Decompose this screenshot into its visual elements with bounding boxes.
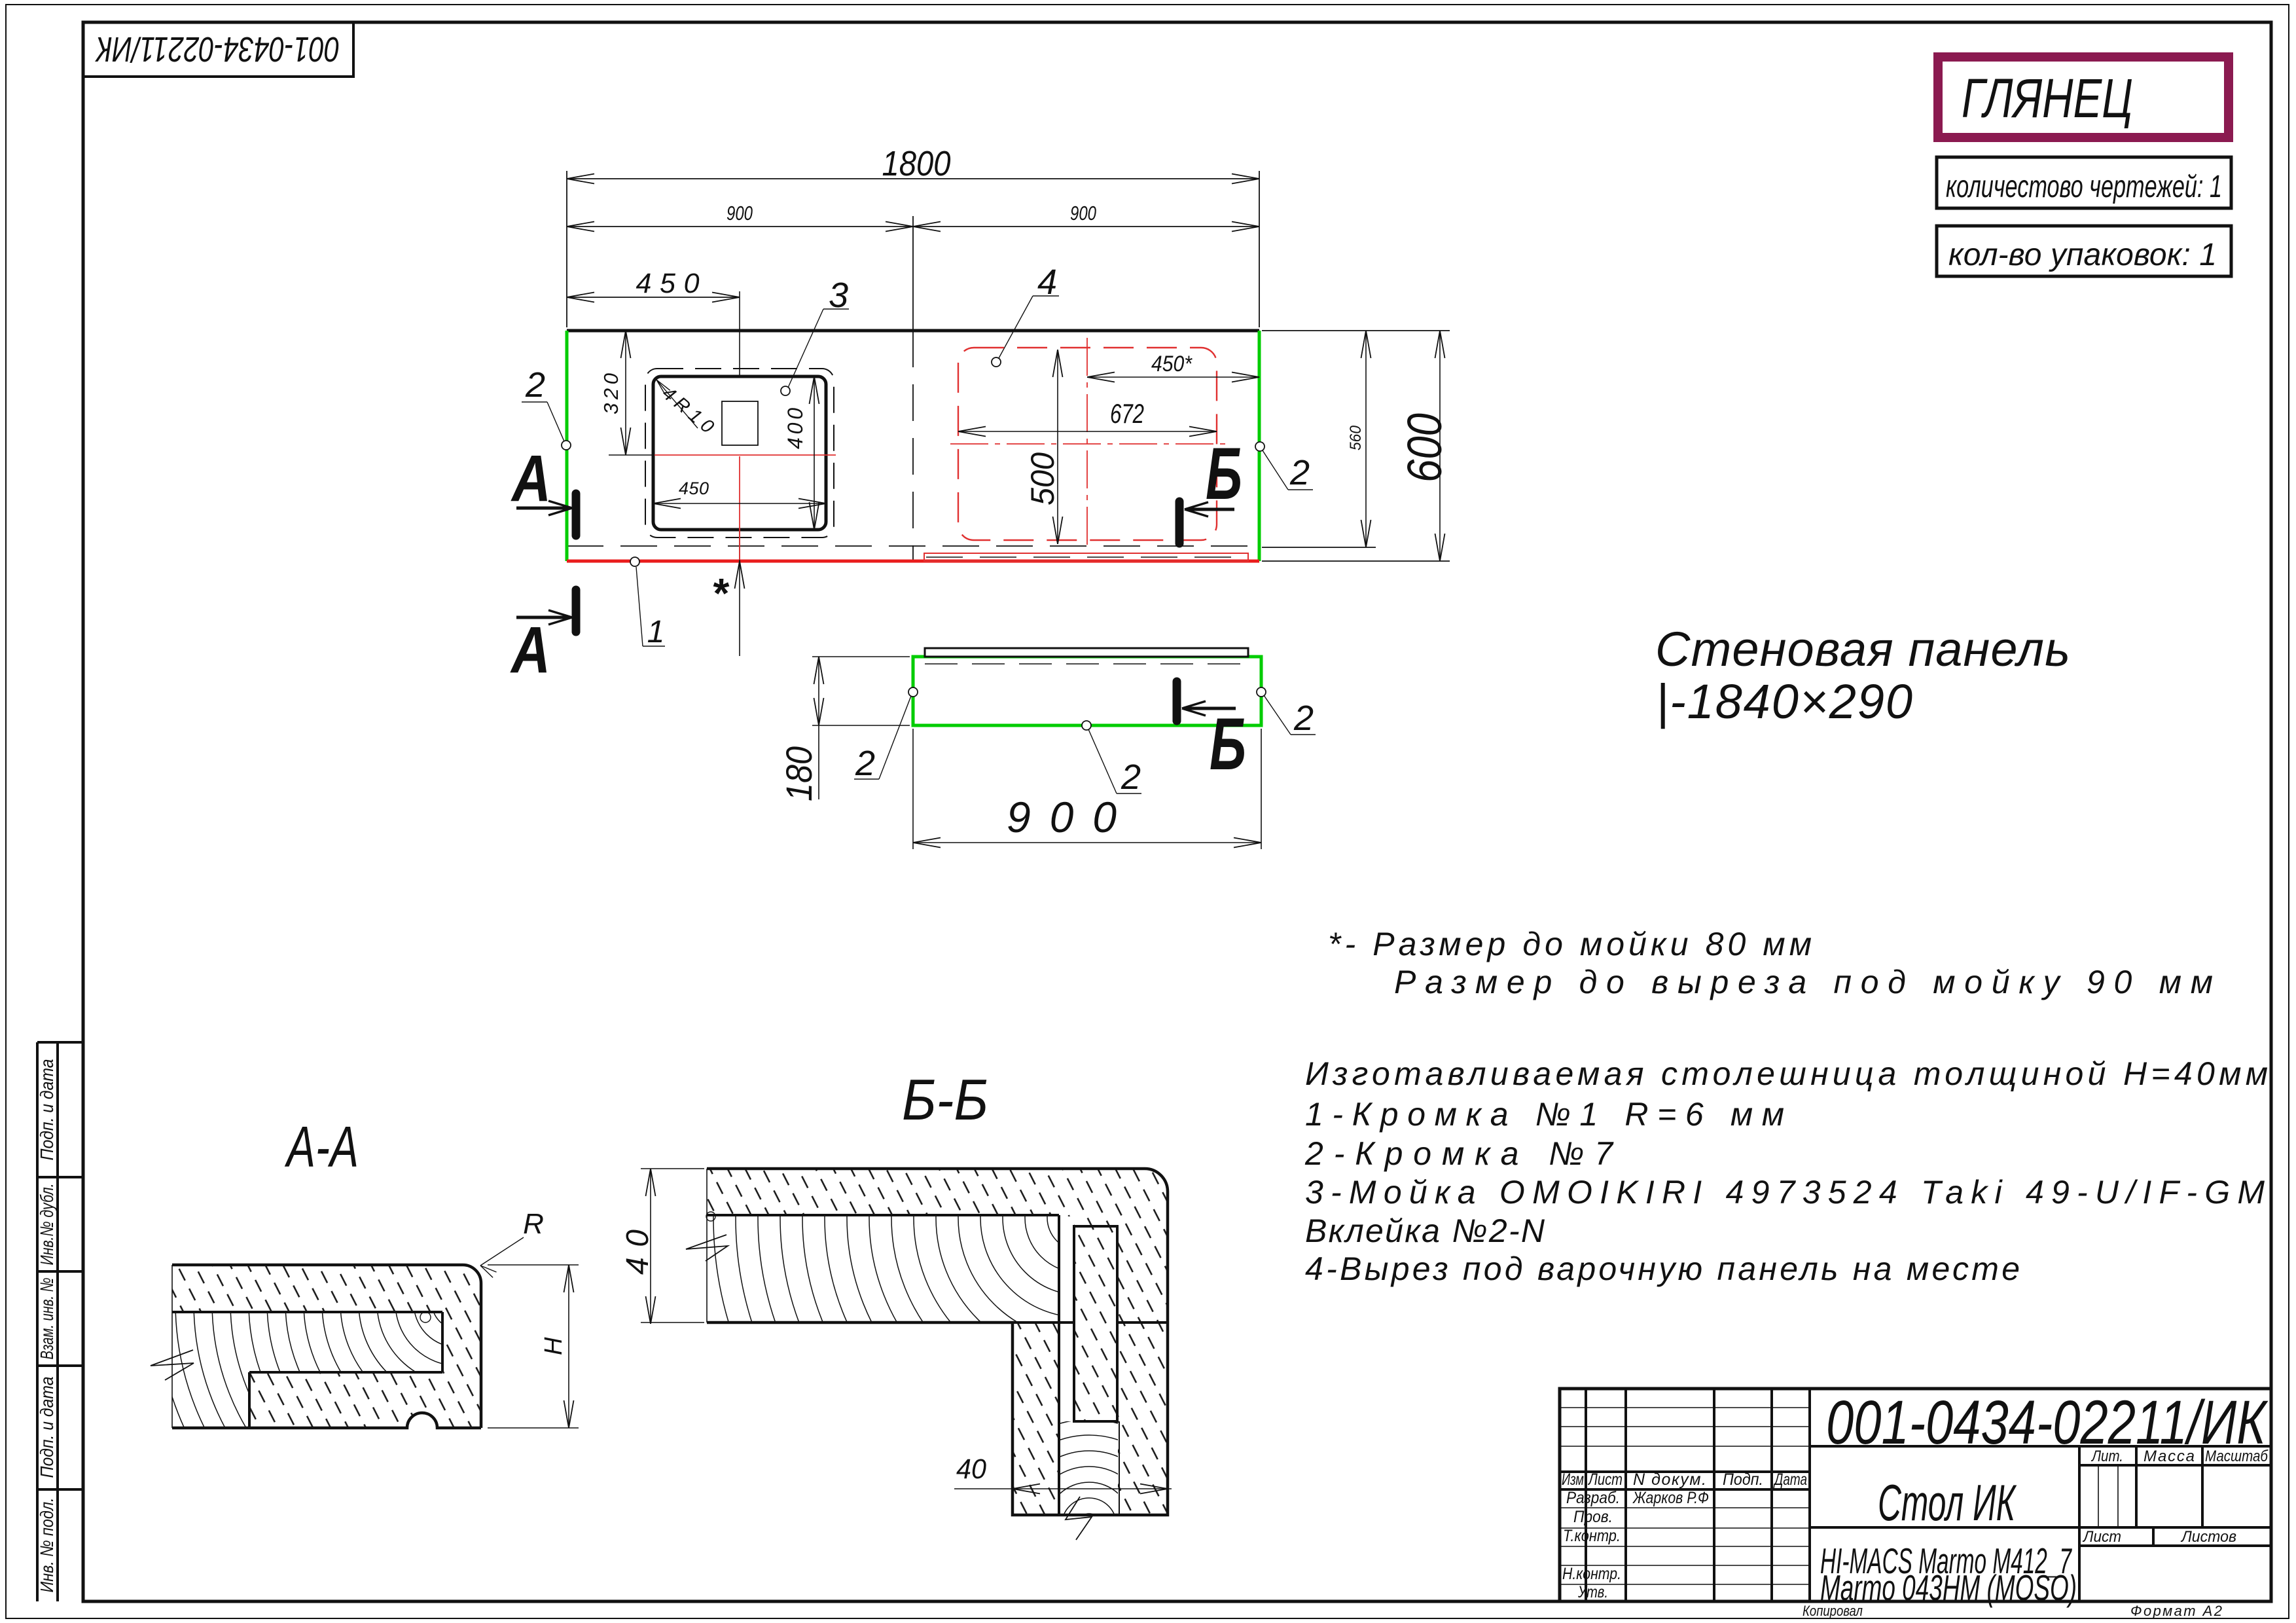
svg-text:320: 320 bbox=[600, 373, 622, 414]
svg-text:Пров.: Пров. bbox=[1573, 1508, 1613, 1526]
svg-text:Б: Б bbox=[1206, 433, 1242, 515]
svg-text:Копировал: Копировал bbox=[1803, 1603, 1863, 1619]
svg-text:900: 900 bbox=[1007, 793, 1117, 841]
svg-text:Масштаб: Масштаб bbox=[2205, 1448, 2269, 1465]
svg-text:количестово чертежей: 1: количестово чертежей: 1 bbox=[1946, 170, 2222, 204]
svg-text:А-А: А-А bbox=[284, 1114, 359, 1179]
svg-text:Инв. № подл.: Инв. № подл. bbox=[37, 1498, 57, 1593]
svg-text:900: 900 bbox=[726, 202, 753, 225]
svg-text:Подп. и дата: Подп. и дата bbox=[37, 1377, 57, 1478]
svg-text:2: 2 bbox=[1293, 699, 1314, 738]
svg-text:Лист: Лист bbox=[1587, 1470, 1623, 1489]
svg-text:Стеновая панель: Стеновая панель bbox=[1655, 622, 2070, 676]
svg-text:400: 400 bbox=[783, 408, 807, 449]
svg-text:Н.контр.: Н.контр. bbox=[1562, 1565, 1621, 1583]
svg-text:450: 450 bbox=[679, 479, 709, 498]
svg-text:кол-во упаковок: 1: кол-во упаковок: 1 bbox=[1948, 238, 2217, 272]
svg-text:Взам. инв. №: Взам. инв. № bbox=[37, 1278, 57, 1360]
svg-text:Утв.: Утв. bbox=[1577, 1583, 1608, 1601]
svg-text:H: H bbox=[540, 1337, 567, 1355]
svg-text:4: 4 bbox=[1037, 263, 1057, 302]
svg-text:Дата: Дата bbox=[1773, 1470, 1807, 1489]
svg-text:А: А bbox=[511, 442, 551, 515]
svg-text:*: * bbox=[713, 570, 730, 617]
svg-text:Т.контр.: Т.контр. bbox=[1563, 1527, 1621, 1545]
svg-text:001-0434-02211/ИК: 001-0434-02211/ИК bbox=[1826, 1388, 2269, 1457]
svg-text:Вклейка №2-N: Вклейка №2-N bbox=[1305, 1213, 1545, 1249]
svg-text:1: 1 bbox=[647, 615, 665, 649]
svg-text:N докум.: N докум. bbox=[1633, 1470, 1706, 1489]
svg-text:Подп.: Подп. bbox=[1723, 1470, 1763, 1489]
svg-text:Подп. и дата: Подп. и дата bbox=[37, 1059, 57, 1161]
svg-text:180: 180 bbox=[778, 746, 819, 801]
svg-text:Листов: Листов bbox=[2180, 1528, 2236, 1546]
svg-text:3: 3 bbox=[829, 276, 848, 315]
svg-text:Лит.: Лит. bbox=[2090, 1448, 2123, 1465]
svg-text:Жарков Р.Ф: Жарков Р.Ф bbox=[1632, 1489, 1709, 1507]
svg-text:Marmo 043HM (MOSO): Marmo 043HM (MOSO) bbox=[1820, 1567, 2077, 1608]
svg-text:672: 672 bbox=[1110, 398, 1144, 429]
svg-text:ГЛЯНЕЦ: ГЛЯНЕЦ bbox=[1962, 67, 2133, 129]
svg-text:Размер до выреза под мойку 90: Размер до выреза под мойку 90 мм bbox=[1394, 964, 2213, 1000]
svg-text:Лист: Лист bbox=[2082, 1528, 2121, 1546]
svg-text:2: 2 bbox=[1289, 453, 1310, 492]
svg-text:4-Вырез под варочную панель на: 4-Вырез под варочную панель на месте bbox=[1305, 1250, 2020, 1287]
svg-text:900: 900 bbox=[1070, 202, 1096, 225]
svg-text:450*: 450* bbox=[1151, 352, 1193, 376]
svg-text:500: 500 bbox=[1024, 452, 1061, 505]
svg-text:|-1840×290: |-1840×290 bbox=[1656, 674, 1912, 729]
svg-text:Изготавливаемая столешница тол: Изготавливаемая столешница толщиной H=40… bbox=[1305, 1055, 2268, 1092]
svg-text:Изм: Изм bbox=[1562, 1470, 1584, 1489]
svg-text:R: R bbox=[523, 1208, 544, 1240]
svg-text:600: 600 bbox=[1397, 413, 1452, 483]
svg-text:Разраб.: Разраб. bbox=[1566, 1489, 1620, 1507]
svg-text:Формат А2: Формат А2 bbox=[2130, 1603, 2222, 1619]
svg-text:1800: 1800 bbox=[882, 144, 951, 183]
svg-text:2: 2 bbox=[1121, 757, 1141, 797]
svg-text:*- Размер до мойки 80 мм: *- Размер до мойки 80 мм bbox=[1328, 926, 1812, 962]
svg-text:Инв.№ дубл.: Инв.№ дубл. bbox=[37, 1184, 57, 1266]
svg-text:2: 2 bbox=[855, 744, 875, 783]
svg-text:Б-Б: Б-Б bbox=[902, 1067, 988, 1132]
svg-text:А: А bbox=[510, 613, 550, 687]
svg-text:Б: Б bbox=[1210, 703, 1246, 785]
svg-text:450: 450 bbox=[636, 268, 700, 299]
svg-text:Стол ИК: Стол ИК bbox=[1878, 1474, 2017, 1531]
svg-text:2: 2 bbox=[525, 365, 545, 405]
svg-text:560: 560 bbox=[1347, 425, 1365, 450]
svg-text:001-0434-02211/ИК: 001-0434-02211/ИК bbox=[95, 29, 340, 69]
svg-text:40: 40 bbox=[956, 1453, 986, 1485]
svg-text:Масса: Масса bbox=[2144, 1448, 2195, 1465]
